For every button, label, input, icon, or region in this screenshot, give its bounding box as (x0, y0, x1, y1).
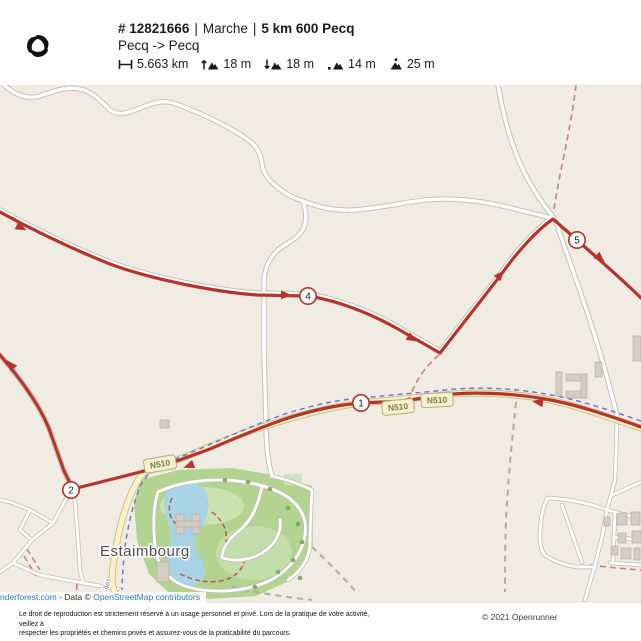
route-name: 5 km 600 Pecq (261, 21, 354, 36)
copyright-notice: © 2021 Openrunner (482, 612, 557, 622)
separator: | (194, 21, 198, 36)
map-attribution: nderforest.com - Data © OpenStreetMap co… (0, 592, 206, 603)
legal-line-2: respecter les propriétés et chemins priv… (19, 630, 291, 637)
svg-text:4: 4 (305, 292, 311, 303)
attribution-separator: - Data © (57, 592, 94, 602)
road-shield: N510 (421, 392, 454, 408)
place-label: Estaimbourg (100, 543, 190, 560)
header-text: # 12821666|Marche|5 km 600 Pecq Pecq -> … (118, 20, 435, 71)
svg-text:5: 5 (574, 236, 580, 247)
distance-icon (118, 59, 133, 70)
route-activity: Marche (203, 21, 248, 36)
stat-elevation-gain: 18 m (201, 57, 251, 71)
stat-value: 14 m (348, 57, 376, 71)
svg-text:N510: N510 (427, 394, 448, 405)
stat-value: 18 m (286, 57, 314, 71)
min-elevation-icon (327, 59, 344, 70)
svg-text:2: 2 (68, 486, 74, 497)
stat-elevation-loss: 18 m (264, 57, 314, 71)
svg-text:N510: N510 (387, 401, 409, 413)
waypoint-marker-1: 1 (353, 395, 369, 411)
stat-min-elevation: 14 m (327, 57, 376, 71)
footer: Le droit de reproduction est strictement… (0, 603, 641, 641)
map-graphics: N510 N510 N510 1 2 (0, 85, 641, 603)
stat-distance: 5.663 km (118, 57, 188, 71)
svg-text:1: 1 (358, 399, 364, 410)
elevation-loss-icon (264, 59, 282, 70)
openrunner-logo-icon (14, 22, 62, 70)
legal-notice: Le droit de reproduction est strictement… (19, 610, 379, 639)
map-canvas: N510 N510 N510 1 2 (0, 85, 641, 603)
route-stats: 5.663 km 18 m 18 m (118, 57, 435, 71)
road-shield: N510 (381, 398, 414, 415)
waypoint-marker-4: 4 (300, 288, 316, 304)
stat-value: 5.663 km (137, 57, 188, 71)
stat-value: 18 m (223, 57, 251, 71)
tiles-attribution-link[interactable]: nderforest.com (0, 592, 57, 602)
legal-line-1: Le droit de reproduction est strictement… (19, 611, 369, 628)
map-background (0, 85, 641, 603)
stat-value: 25 m (407, 57, 435, 71)
waypoint-marker-2: 2 (63, 482, 79, 498)
route-title: # 12821666|Marche|5 km 600 Pecq (118, 20, 435, 37)
route-id: # 12821666 (118, 21, 189, 36)
route-direction: Pecq -> Pecq (118, 37, 435, 54)
stat-max-elevation: 25 m (389, 57, 435, 71)
separator: | (253, 21, 257, 36)
elevation-gain-icon (201, 59, 219, 70)
waypoint-marker-5: 5 (569, 232, 585, 248)
openrunner-route-export: # 12821666|Marche|5 km 600 Pecq Pecq -> … (0, 0, 641, 641)
max-elevation-icon (389, 58, 403, 70)
osm-attribution-link[interactable]: OpenStreetMap contributors (93, 592, 200, 602)
header: # 12821666|Marche|5 km 600 Pecq Pecq -> … (0, 0, 641, 85)
